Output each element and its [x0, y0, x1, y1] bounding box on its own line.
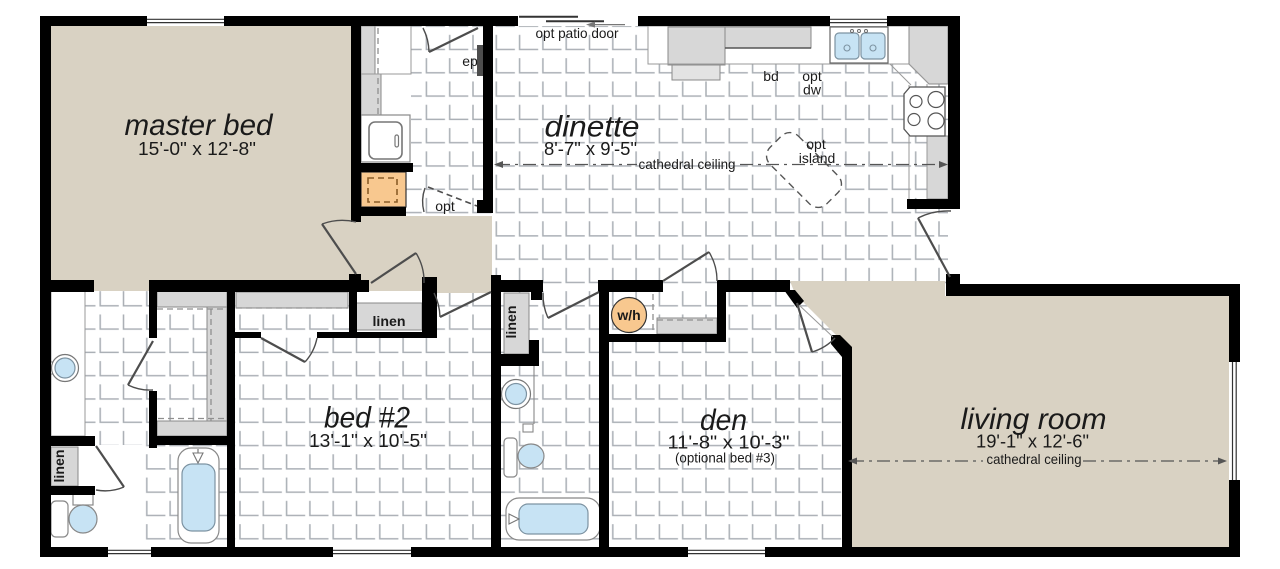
svg-text:w/h: w/h: [616, 307, 640, 323]
svg-text:13'-1" x 10'-5": 13'-1" x 10'-5": [309, 431, 427, 451]
svg-text:linen: linen: [51, 450, 67, 483]
svg-text:ep: ep: [462, 53, 478, 69]
svg-text:cathedral ceiling: cathedral ceiling: [639, 156, 736, 172]
svg-text:opt: opt: [435, 198, 455, 214]
svg-text:bd: bd: [763, 68, 779, 84]
svg-text:island: island: [799, 150, 836, 166]
svg-text:(optional bed #3): (optional bed #3): [675, 450, 775, 466]
svg-text:dw: dw: [803, 82, 822, 98]
svg-text:15'-0" x 12'-8": 15'-0" x 12'-8": [138, 139, 256, 159]
svg-text:linen: linen: [503, 306, 519, 339]
svg-text:19'-1" x 12'-6": 19'-1" x 12'-6": [976, 432, 1089, 452]
svg-text:linen: linen: [373, 313, 406, 329]
svg-text:8'-7" x 9'-5": 8'-7" x 9'-5": [544, 139, 637, 159]
svg-text:opt patio door: opt patio door: [536, 25, 619, 41]
svg-text:cathedral ceiling: cathedral ceiling: [987, 451, 1082, 467]
svg-text:master bed: master bed: [125, 109, 274, 142]
svg-text:bed #2: bed #2: [324, 402, 410, 435]
